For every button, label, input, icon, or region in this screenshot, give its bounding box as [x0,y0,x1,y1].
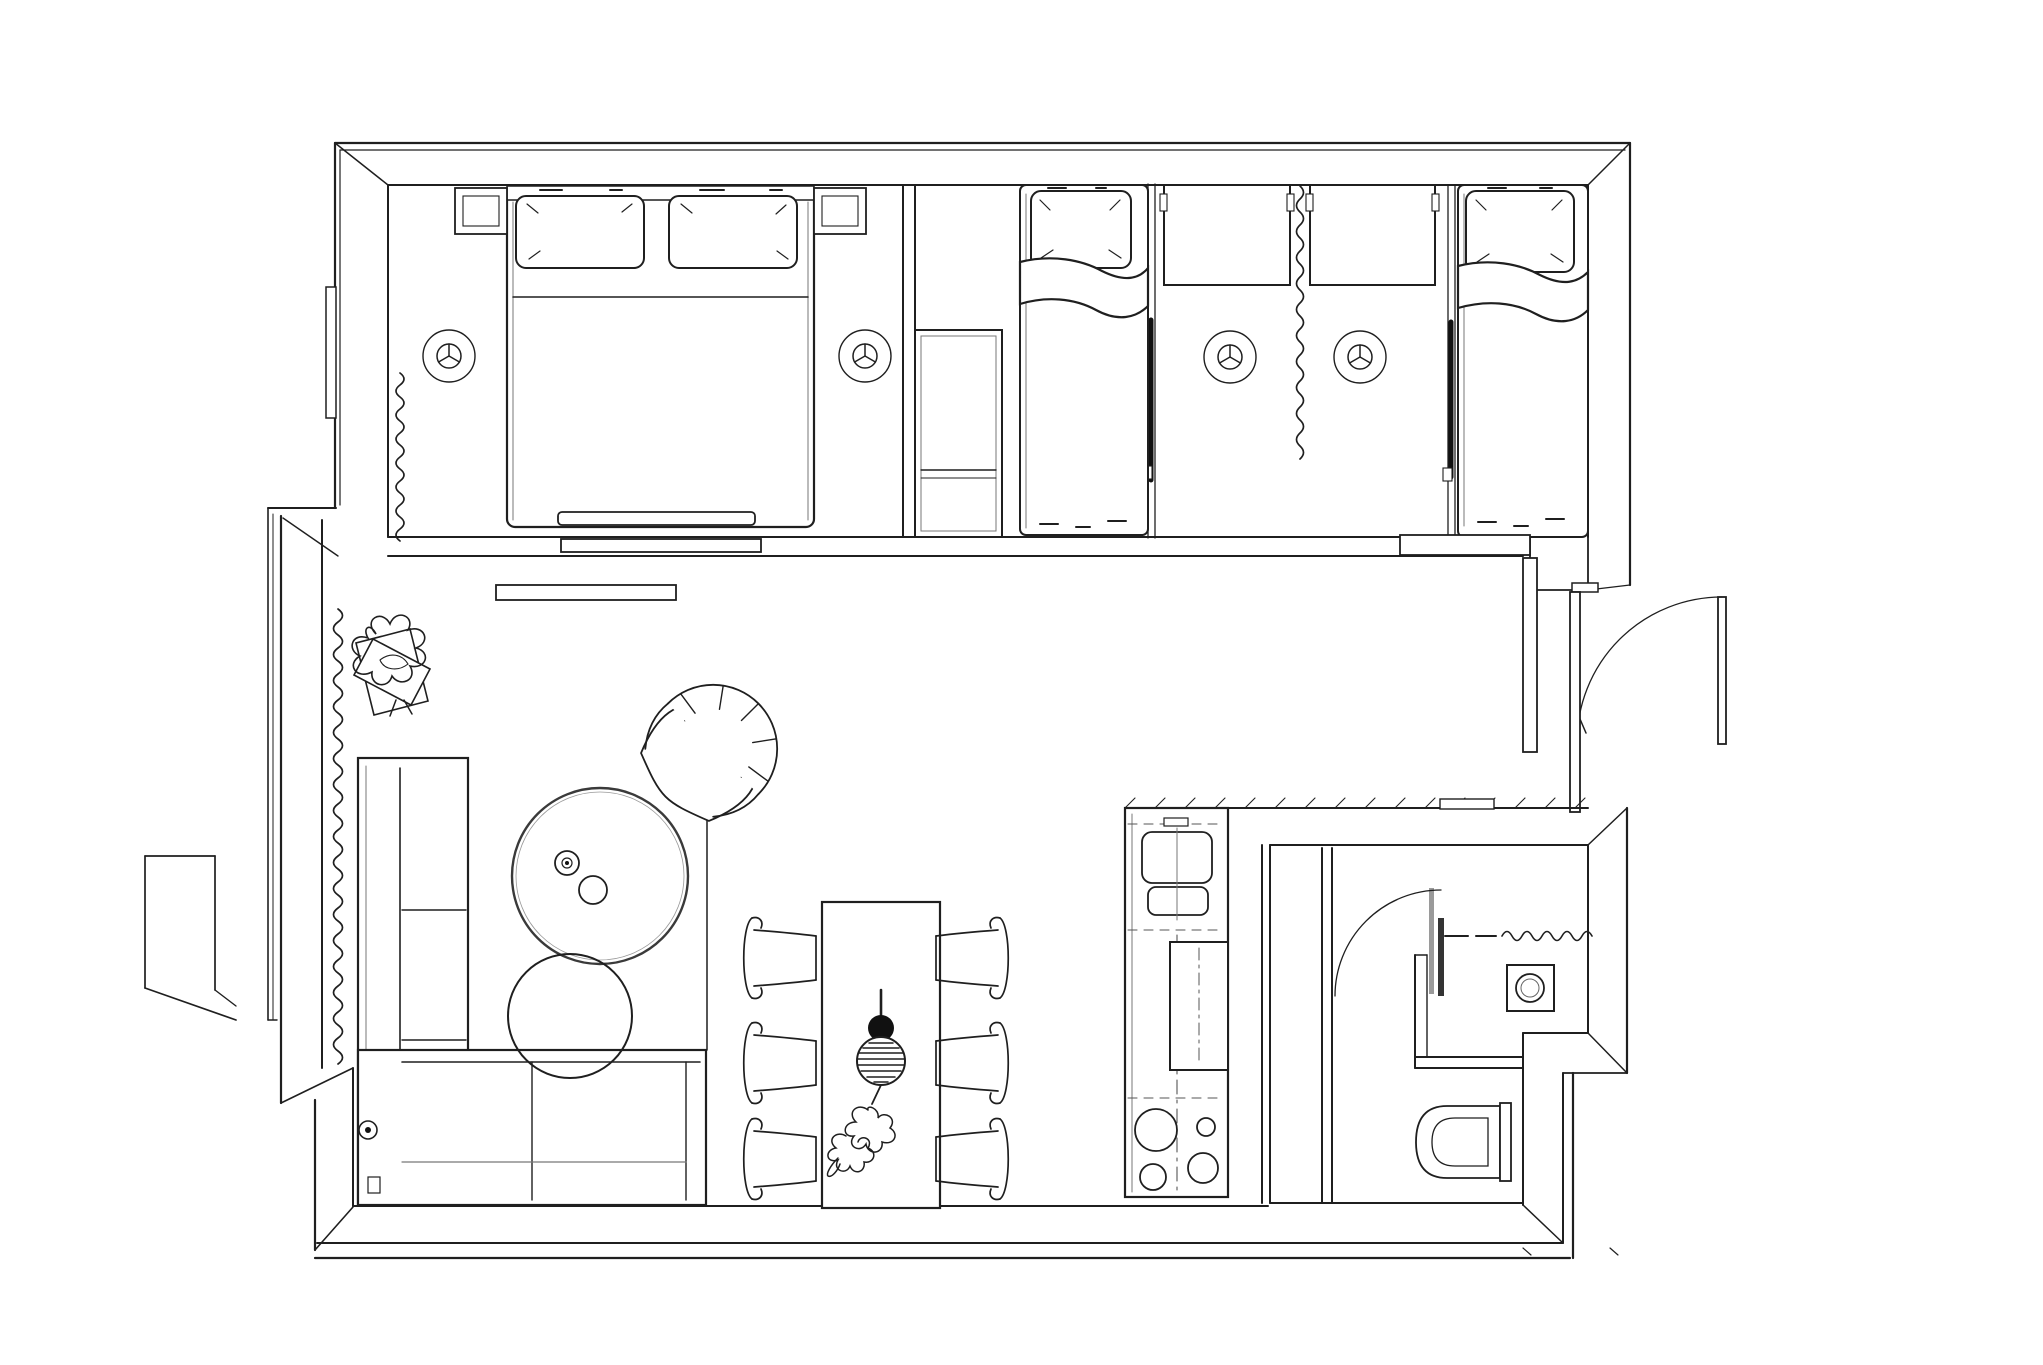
entry-door-leaf [1718,597,1726,744]
chair-line [990,1023,1000,1033]
cabinet1-tab-r [1287,194,1294,211]
chair-line [744,1023,752,1103]
fan-spoke [439,356,449,362]
chair-line [936,1131,998,1137]
fan-back-armchair [620,658,804,842]
block-step-diag [1588,1033,1627,1073]
speck-2 [1610,1248,1618,1255]
chair-line [752,1023,762,1033]
hatch-tick [1125,798,1135,808]
floor-plan-canvas [0,0,2043,1365]
fan-spoke [1230,357,1240,363]
chair-line [1000,1023,1008,1103]
chair-line [752,918,762,928]
chair-line [936,980,998,986]
hatch-tick [1155,798,1165,808]
planter-diag2 [215,990,236,1006]
entry-door-handle [1580,719,1586,733]
entry-threshold [1572,583,1598,592]
curtain-balcony-bay [334,609,343,1064]
hatch-tick [1305,798,1315,808]
entry-side-wall [1570,592,1580,812]
pillow-bed2 [1466,191,1574,272]
ceiling-fan-icon [1334,331,1386,383]
cabinet1-tab-l [1160,194,1167,211]
chair-line [752,1119,762,1129]
fan-spoke [855,356,865,362]
hatch-tick [1185,798,1195,808]
bathroom-door-leaf [1438,918,1444,996]
dining-chair [744,1119,816,1200]
chair-line [754,930,816,936]
pillow-bed1 [1031,191,1131,268]
chair-line [936,930,998,936]
pendant-sphere [857,1037,905,1085]
hatch-tick [1395,798,1405,808]
bay-mitre-bottom [281,1068,353,1103]
chair-line [752,988,762,998]
sofa-leg [368,1177,380,1193]
hatch-tick [1275,798,1285,808]
chair-line [744,1119,752,1199]
window-panel-left [326,287,336,418]
chair-line [936,1035,998,1041]
wall-cabinet-2 [1310,185,1435,285]
fan-spoke [1350,357,1360,363]
dining-chair [936,918,1008,999]
chair-line [990,1093,1000,1103]
wall-mitre-tl [335,143,388,185]
ceiling-fan-icon [423,330,475,382]
chair-line [754,980,816,986]
hatch-tick [1515,798,1525,808]
chair-line [754,1131,816,1137]
side-decor-dot [565,861,569,865]
chair-line [990,988,1000,998]
block-mitre-tr [1588,808,1627,845]
kids-room-divider-curtain [1297,186,1304,459]
kids-partition2-foot [1443,468,1452,481]
fan-spoke [1220,357,1230,363]
entry-door-arc [1577,597,1722,742]
sink-faucet [1164,818,1188,826]
dining-chair [936,1023,1008,1104]
pillow-master-right [669,196,797,268]
entry-closet-wall [1523,558,1537,752]
cabinet2-tab-r [1432,194,1439,211]
speck-1 [1523,1248,1531,1255]
chair-line [1000,918,1008,998]
chair-line [754,1181,816,1187]
door-stopper-dot [365,1127,371,1133]
cabinet2-tab-l [1306,194,1313,211]
hatch-tick [1545,798,1555,808]
sink-basin-2 [1148,887,1208,915]
bathroom-door-arc [1335,890,1441,996]
chair-line [752,1189,762,1199]
hatch-tick [1215,798,1225,808]
sliding-door-kids [1400,535,1530,555]
hatch-tick [1425,798,1435,808]
wall-cabinet-1 [1164,185,1290,285]
toilet-tank [1500,1103,1511,1181]
dining-chair [744,918,816,999]
ceiling-fan-icon [1204,331,1256,383]
corridor-sill [1440,799,1494,809]
planter-diag1 [145,988,236,1020]
floor-plan-page [0,0,2043,1365]
washing-machine [1507,965,1554,1011]
shower-scallop [1502,932,1592,941]
chair-line [752,1093,762,1103]
pillow-master-left [516,196,644,268]
round-rug [512,788,688,964]
tile-hatch-row [1125,798,1585,808]
chair-line [936,1181,998,1187]
chair-line [754,1085,816,1091]
fan-spoke [865,356,875,362]
hatch-tick [1365,798,1375,808]
tv-console [496,585,676,600]
ceiling-fan-icon [839,330,891,382]
curtain-master-bedroom [396,373,404,541]
wardrobe [915,330,1002,537]
chair-line [936,1085,998,1091]
master-bed-footer [558,512,755,525]
wall-mitre-tr [1588,143,1630,185]
dining-chair [744,1023,816,1104]
chair-line [754,1035,816,1041]
hatch-tick [1335,798,1345,808]
sliding-door-master [561,539,761,552]
chair-line [990,1119,1000,1129]
hatch-tick [1245,798,1255,808]
side-decor-b [579,876,607,904]
chair-line [990,918,1000,928]
chair-line [1000,1119,1008,1199]
shower-glass-panel [1429,888,1434,994]
round-rug-inner [516,792,684,960]
fan-spoke [1360,357,1370,363]
bay-mitre-top [283,518,338,556]
chair-line [744,918,752,998]
chair-line [990,1189,1000,1199]
block-mitre-br [1523,1205,1563,1243]
dining-chair [936,1119,1008,1200]
fan-spoke [449,356,459,362]
